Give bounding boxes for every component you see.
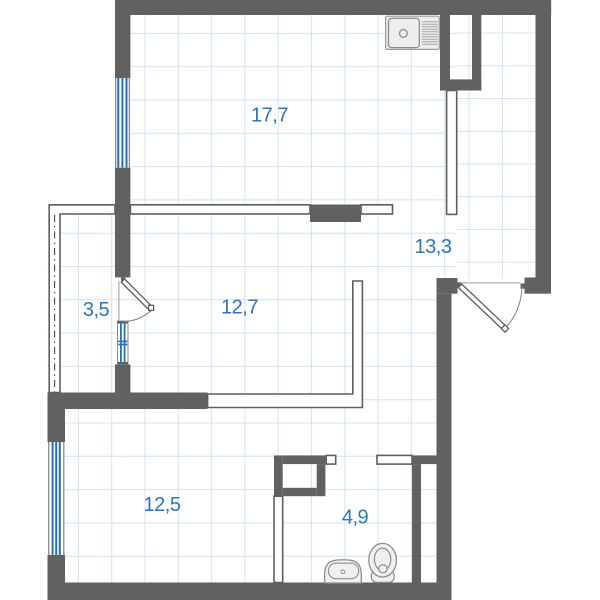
svg-text:4,9: 4,9 — [342, 507, 369, 529]
svg-text:3,5: 3,5 — [83, 299, 110, 321]
svg-text:13,3: 13,3 — [415, 236, 452, 258]
svg-text:17,7: 17,7 — [251, 105, 288, 127]
svg-text:12,5: 12,5 — [144, 494, 181, 516]
svg-text:12,7: 12,7 — [221, 297, 258, 319]
